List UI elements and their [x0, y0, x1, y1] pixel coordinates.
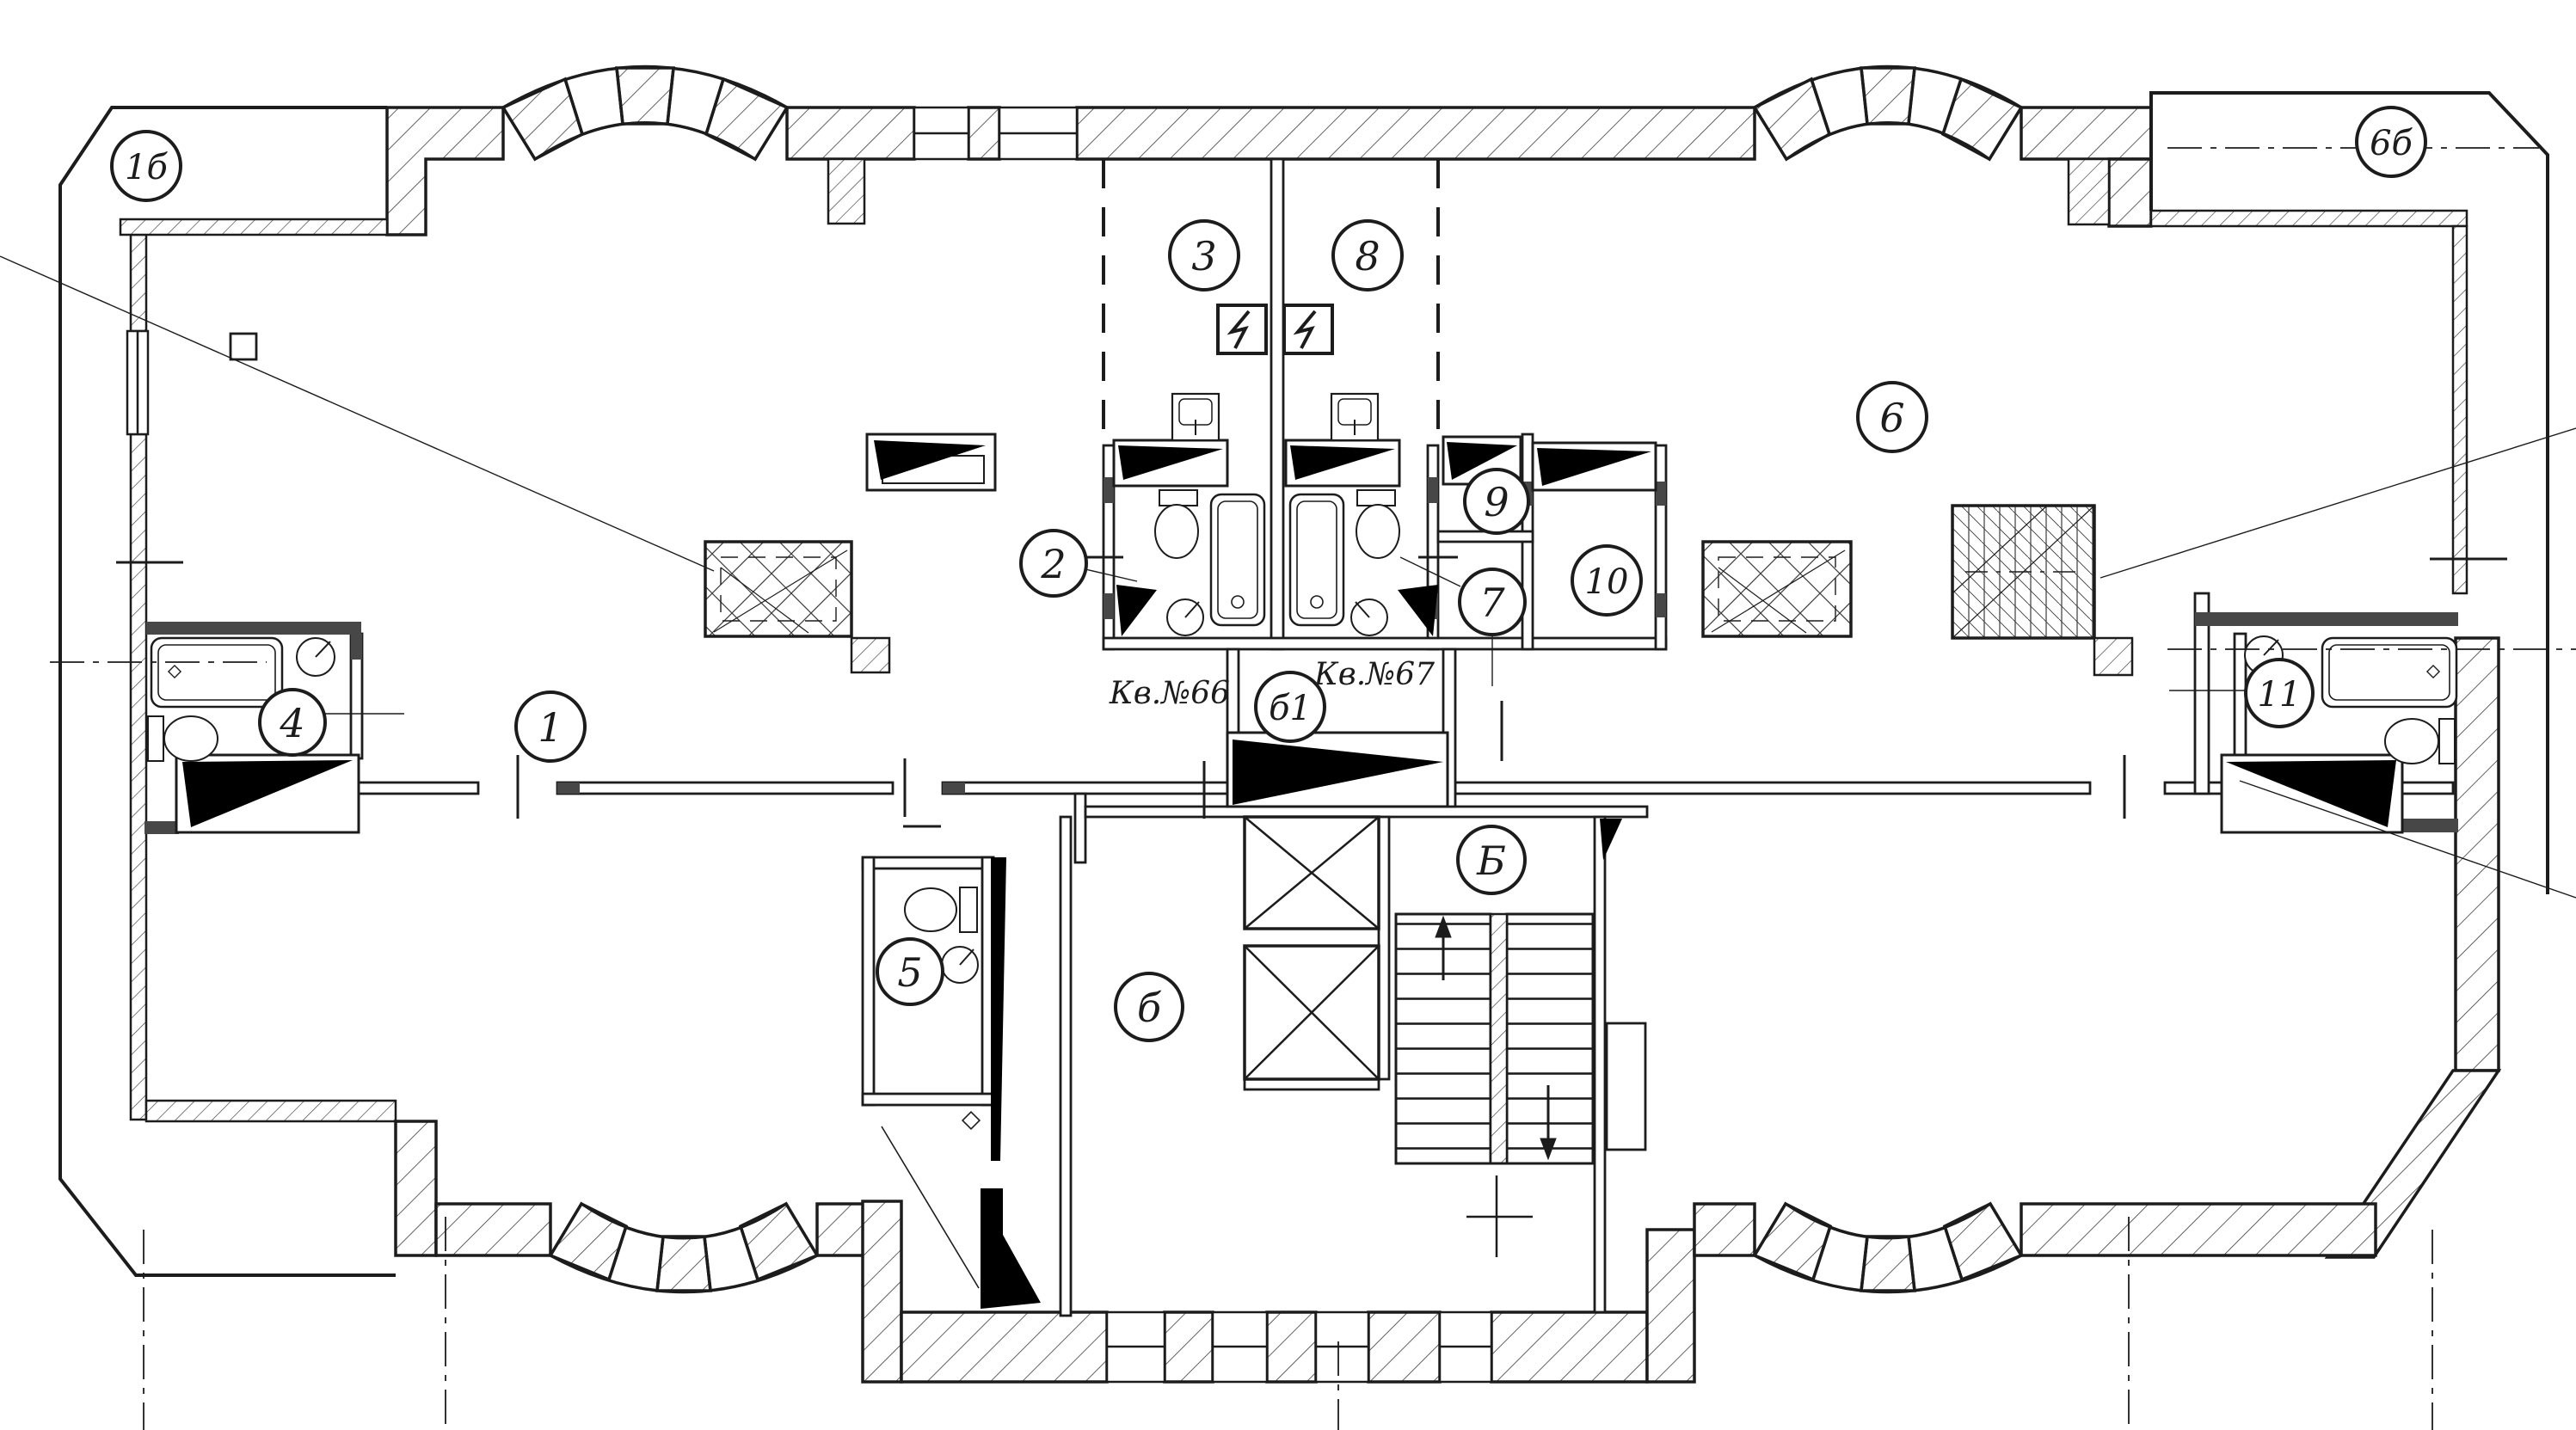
- party-wall: [1271, 159, 1283, 649]
- wall-right-thin: [2453, 226, 2467, 593]
- shaft-small-right: [2094, 638, 2132, 675]
- room-label-text: б: [1137, 985, 1162, 1031]
- wall-top-mid2: [1077, 107, 1755, 159]
- room-label-text: 10: [1585, 562, 1629, 602]
- window-left-wall: [127, 331, 148, 434]
- lobby-wall-left: [1061, 817, 1071, 1316]
- stair-right-duct: [1607, 1023, 1645, 1150]
- room-label-text: 2: [1040, 541, 1066, 587]
- room5-wall-left: [863, 857, 874, 1105]
- bath4-wall-bottom: [144, 821, 179, 834]
- washstand-icon: [1172, 394, 1219, 440]
- room-label-text: 7: [1479, 580, 1505, 626]
- stair-block-wall-bottom5: [1491, 1312, 1647, 1382]
- bath11-door-box: [2222, 755, 2402, 832]
- bay-bottom-left: [550, 1204, 817, 1292]
- stair-block-wall-bottom2: [1165, 1312, 1213, 1382]
- room-label-lobby: б: [1116, 973, 1183, 1040]
- stair-block-wall-left: [863, 1201, 901, 1382]
- cluster-wall-bottom: [1104, 638, 1666, 649]
- wall-top-right: [2021, 107, 2151, 159]
- toilet-icon: [2385, 719, 2455, 764]
- electrical-panel-icon: [1218, 305, 1266, 353]
- vent-box-room3: [867, 434, 995, 490]
- elevator-bottom-wall: [1245, 1079, 1379, 1089]
- bathtub-icon: [2322, 638, 2456, 707]
- bay-windows: [503, 67, 2021, 1292]
- sink-icon: [297, 638, 335, 676]
- wall-bottom-left: [436, 1204, 550, 1255]
- wall-top-mid1: [787, 107, 914, 159]
- column: [231, 334, 256, 359]
- bathtub-icon: [1290, 494, 1343, 625]
- shaft-box-left: [705, 542, 851, 636]
- floor-plan-drawing: 1б 3 8 6 6б 2 9 7: [0, 0, 2576, 1430]
- elevator-shaft-2: [1245, 946, 1379, 1079]
- room-label-text: Б: [1476, 838, 1506, 884]
- room-label-8: 8: [1333, 221, 1402, 290]
- electrical-panel-icon: [1284, 305, 1332, 353]
- room10-wall-right: [1656, 445, 1666, 649]
- elevator-front-wall: [1379, 817, 1389, 1079]
- wall-bottom-right: [2021, 1204, 2376, 1255]
- room-label-text: 6б: [2370, 124, 2413, 163]
- room-label-text: 9: [1484, 479, 1509, 525]
- room-label-text: 1б: [125, 148, 168, 187]
- room-label-6: 6: [1858, 383, 1927, 451]
- wall-left-upper: [131, 235, 146, 331]
- bath11-wall-top: [2195, 612, 2458, 626]
- wall-right-thick: [2456, 638, 2499, 1071]
- wall-step-left: [396, 1121, 436, 1255]
- wall-left-lower: [131, 434, 146, 1120]
- bath4-wall-top: [146, 622, 361, 635]
- room-label-9: 9: [1465, 470, 1528, 533]
- corridor-wall-r1: [1455, 783, 2090, 794]
- stair-block-top-wall: [1085, 807, 1647, 817]
- stair-right-wall: [1595, 817, 1605, 1312]
- room-label-text: б1: [1269, 689, 1312, 728]
- room5-wall-bottom: [863, 1094, 993, 1105]
- shaft-small-left: [851, 638, 889, 672]
- bay-bottom-right: [1755, 1204, 2021, 1292]
- room-label-balcony-left: 1б: [112, 132, 181, 200]
- elevator-shaft-1: [1245, 817, 1379, 929]
- washstand-icon: [1331, 394, 1378, 440]
- wall-bottom-left2: [817, 1204, 864, 1255]
- floor-plan-sheet: 1б 3 8 6 6б 2 9 7: [0, 0, 2576, 1430]
- window-stair-4: [1440, 1312, 1491, 1382]
- apartment-66-label: Кв.№66: [1109, 676, 1230, 711]
- apartment-67-label: Кв.№67: [1313, 657, 1435, 692]
- stair-flight-down: [1507, 914, 1593, 1163]
- room5-wall-top: [863, 857, 993, 868]
- bath11-wall-bottom: [2396, 819, 2458, 832]
- stair-stringer: [1491, 914, 1507, 1163]
- corridor-wall-v: [1075, 794, 1085, 862]
- stair-block-wall-bottom4: [1368, 1312, 1440, 1382]
- window-stair-1: [1107, 1312, 1165, 1382]
- room-label-text: 3: [1191, 233, 1216, 279]
- leader-right-long: [2100, 428, 2576, 578]
- room-label-text: 1: [538, 704, 563, 751]
- room-label-10: 10: [1572, 546, 1641, 615]
- wall-top-pier: [968, 107, 999, 159]
- vent-box-room10: [1533, 443, 1656, 490]
- room-label-2: 2: [1021, 531, 1086, 596]
- vestibule-door: [1227, 733, 1448, 807]
- pier-stub-left: [828, 159, 864, 224]
- wall-corner-right: [2109, 159, 2151, 226]
- window-top-1: [914, 107, 968, 159]
- room-label-stairwell: Б: [1458, 826, 1525, 893]
- door-leaf-icon: [1116, 585, 1157, 636]
- room-label-5: 5: [877, 939, 943, 1004]
- elevators: [1245, 817, 1379, 1079]
- toilet-icon: [1155, 490, 1198, 558]
- wall-under-balcony-right: [2151, 211, 2467, 226]
- toilet-icon: [148, 716, 218, 761]
- room9-7-divider: [1438, 531, 1533, 542]
- room-label-4: 4: [260, 690, 325, 755]
- room-label-1: 1: [516, 692, 585, 761]
- shaft-box-mid-right: [1703, 542, 1851, 636]
- stair-block-wall-bottom3: [1267, 1312, 1316, 1382]
- room-label-text: 11: [2258, 675, 2302, 715]
- wall-bottom-left-thin: [146, 1101, 396, 1121]
- room-label-3: 3: [1170, 221, 1239, 290]
- wall-bottom-center-right: [1694, 1204, 1755, 1255]
- room-label-balcony-right: 6б: [2357, 107, 2425, 176]
- wall-top-left: [387, 107, 503, 235]
- stair-block-wall-bottom1: [901, 1312, 1107, 1382]
- door-leaf-tall-icon: [991, 857, 1006, 1161]
- toilet-icon: [1356, 490, 1399, 558]
- shaft-box-right: [1952, 506, 2094, 638]
- bay-top-left: [503, 67, 787, 160]
- room-label-7: 7: [1460, 569, 1525, 635]
- window-stair-2: [1213, 1312, 1267, 1382]
- bath4-door-box: [176, 755, 359, 832]
- bay-top-right: [1755, 67, 2021, 160]
- leader-left-long: [0, 256, 714, 571]
- sink-icon: [942, 947, 978, 983]
- room-label-11: 11: [2246, 660, 2313, 727]
- bathtub-icon: [1211, 494, 1264, 625]
- vent-box-bath-right: [1286, 440, 1399, 486]
- corridor-wall-l2: [557, 783, 893, 794]
- stair-block-wall-right: [1647, 1230, 1694, 1382]
- door-leaf-icon: [1600, 819, 1622, 860]
- window-stair-3: [1316, 1312, 1368, 1382]
- wall-balcony-left-bottom: [120, 219, 387, 235]
- room-label-text: 5: [897, 949, 922, 996]
- bathtub-icon: [151, 638, 282, 707]
- bath11-wall-left: [2235, 634, 2246, 758]
- room-label-text: 8: [1355, 233, 1380, 279]
- sink-icon: [1351, 599, 1387, 635]
- stairs: [1396, 914, 1593, 1257]
- corridor-wall-l3: [943, 783, 1227, 794]
- vent-box-bath-left: [1114, 440, 1227, 486]
- window-top-2: [999, 107, 1077, 159]
- toilet-icon: [905, 887, 977, 932]
- door-leaf-icon: [981, 1188, 1041, 1309]
- leader-right-lower: [2240, 781, 2576, 898]
- door-leaf-icon: [1398, 585, 1438, 636]
- pier-stub-right: [2069, 159, 2109, 224]
- sink-icon: [1167, 599, 1203, 635]
- room-label-text: 6: [1879, 395, 1904, 441]
- room-label-text: 4: [279, 700, 304, 746]
